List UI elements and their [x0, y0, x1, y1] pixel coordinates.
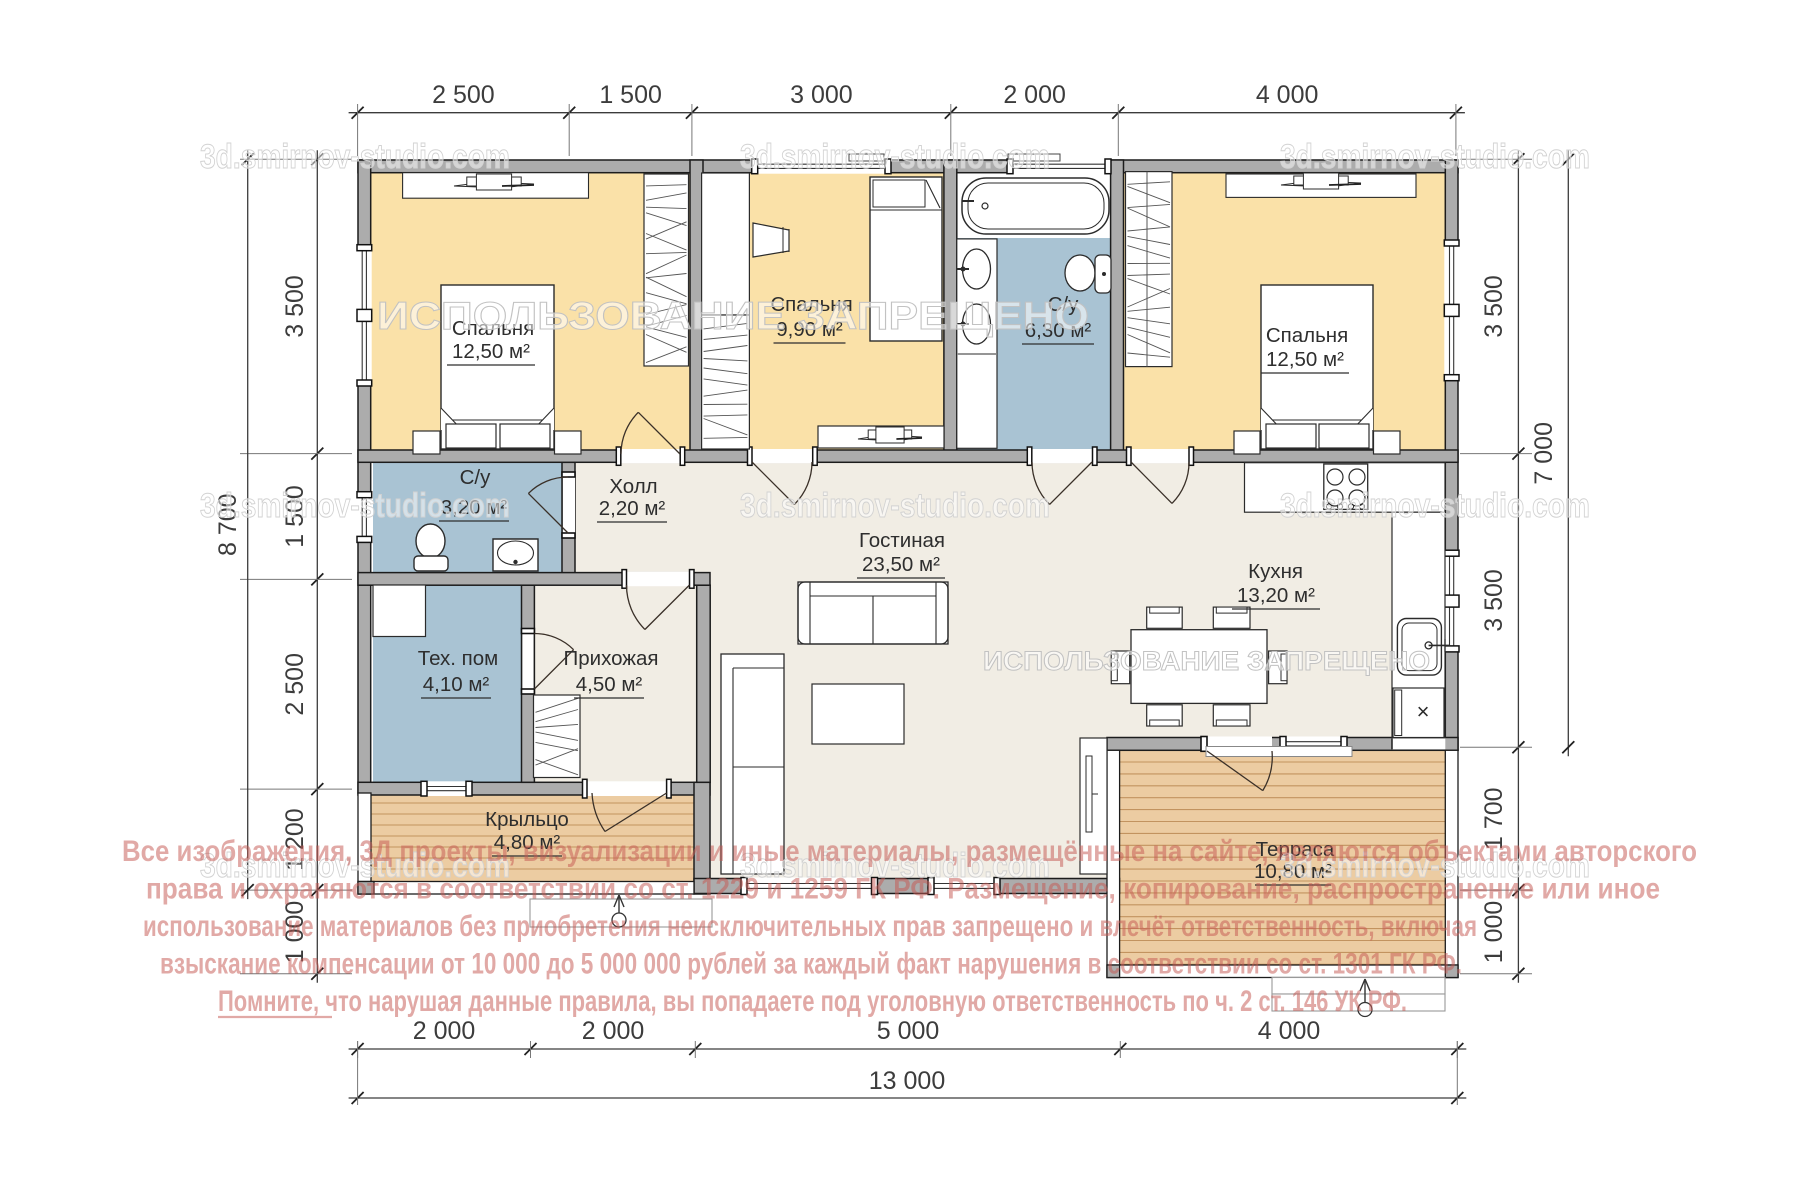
svg-text:12,50 м²: 12,50 м² [1266, 348, 1344, 371]
svg-text:Кухня: Кухня [1248, 560, 1303, 583]
svg-text:4 000: 4 000 [1256, 81, 1319, 109]
svg-text:23,50 м²: 23,50 м² [862, 553, 940, 576]
svg-text:3d.smirnov-studio.com: 3d.smirnov-studio.com [1280, 138, 1590, 176]
svg-text:2 000: 2 000 [1003, 81, 1066, 109]
svg-text:Спальня: Спальня [1266, 324, 1348, 347]
svg-text:3d.smirnov-studio.com: 3d.smirnov-studio.com [740, 487, 1050, 525]
svg-text:3d.smirnov-studio.com: 3d.smirnov-studio.com [200, 138, 510, 176]
svg-text:С/у: С/у [460, 466, 492, 489]
svg-text:использование материалов без п: использование материалов без приобретени… [143, 910, 1477, 943]
svg-text:1 000: 1 000 [1480, 901, 1508, 964]
svg-text:4 000: 4 000 [1258, 1017, 1321, 1045]
svg-text:3d.smirnov-studio.com: 3d.smirnov-studio.com [740, 138, 1050, 176]
svg-text:13 000: 13 000 [869, 1067, 945, 1095]
svg-text:ИСПОЛЬЗОВАНИЕ ЗАПРЕЩЕНО: ИСПОЛЬЗОВАНИЕ ЗАПРЕЩЕНО [983, 646, 1430, 676]
svg-text:Тех. пом: Тех. пом [418, 647, 499, 670]
svg-text:Крыльцо: Крыльцо [485, 808, 569, 831]
svg-text:1 500: 1 500 [599, 81, 662, 109]
svg-text:2 000: 2 000 [582, 1017, 645, 1045]
svg-text:3 000: 3 000 [790, 81, 853, 109]
svg-text:Помните, что нарушая данные пр: Помните, что нарушая данные правила, вы … [218, 985, 1407, 1018]
svg-text:права и охраняются в соответст: права и охраняются в соответствии со ст.… [146, 873, 1660, 906]
svg-text:2 500: 2 500 [432, 81, 495, 109]
svg-text:×: × [1417, 699, 1430, 724]
svg-text:2,20 м²: 2,20 м² [599, 497, 666, 520]
svg-text:3d.smirnov-studio.com: 3d.smirnov-studio.com [200, 487, 510, 525]
svg-text:3 500: 3 500 [1480, 569, 1508, 632]
svg-text:3d.smirnov-studio.com: 3d.smirnov-studio.com [1280, 487, 1590, 525]
svg-text:2 500: 2 500 [281, 653, 309, 716]
svg-text:Прихожая: Прихожая [564, 647, 659, 670]
svg-text:3 500: 3 500 [1480, 275, 1508, 338]
svg-text:13,20 м²: 13,20 м² [1237, 584, 1315, 607]
svg-text:5 000: 5 000 [877, 1017, 940, 1045]
svg-text:Все изображения, 3Д проекты, в: Все изображения, 3Д проекты, визуализаци… [122, 835, 1697, 868]
svg-text:7 000: 7 000 [1530, 422, 1558, 485]
svg-text:Холл: Холл [609, 475, 657, 498]
svg-text:4,50 м²: 4,50 м² [576, 673, 643, 696]
svg-text:4,10 м²: 4,10 м² [423, 673, 490, 696]
svg-text:ИСПОЛЬЗОВАНИЕ ЗАПРЕЩЕНО: ИСПОЛЬЗОВАНИЕ ЗАПРЕЩЕНО [377, 295, 1089, 338]
svg-text:3 500: 3 500 [281, 275, 309, 338]
svg-text:12,50 м²: 12,50 м² [452, 340, 530, 363]
svg-text:2 000: 2 000 [413, 1017, 476, 1045]
svg-text:Гостиная: Гостиная [859, 529, 945, 552]
svg-text:взыскание компенсации от 10 00: взыскание компенсации от 10 000 до 5 000… [160, 948, 1462, 981]
